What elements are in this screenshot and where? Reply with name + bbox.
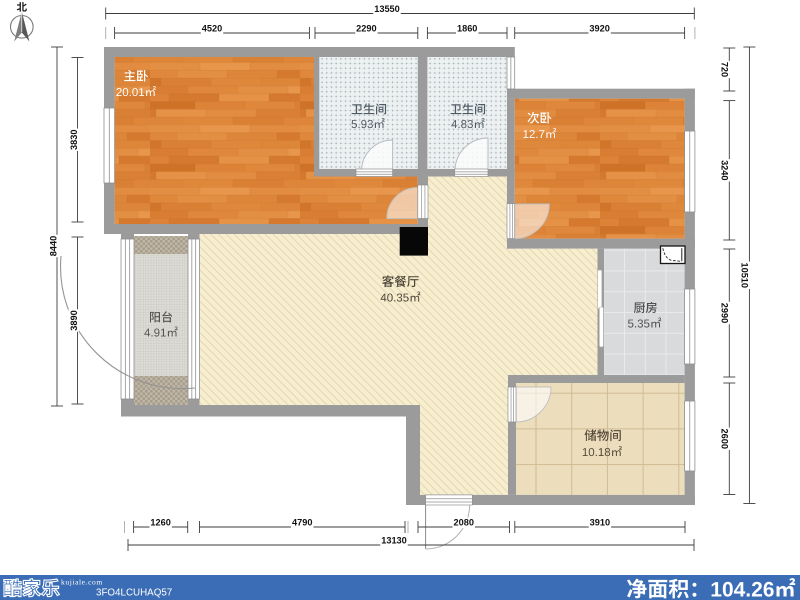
svg-text:2080: 2080 [454,518,474,528]
svg-text:kujiale.com: kujiale.com [61,578,103,587]
svg-text:4520: 4520 [202,24,222,34]
svg-text:10510: 10510 [740,262,750,288]
svg-text:3890: 3890 [69,310,79,330]
svg-text:3240: 3240 [719,160,729,180]
svg-text:3FO4LCUHAQ57: 3FO4LCUHAQ57 [96,588,172,599]
svg-text:8440: 8440 [49,236,59,256]
svg-text:1260: 1260 [150,518,170,528]
svg-text:3830: 3830 [69,130,79,150]
svg-text:2990: 2990 [719,303,729,323]
svg-text:13130: 13130 [381,536,407,546]
svg-text:2290: 2290 [356,24,376,34]
svg-text:4790: 4790 [292,518,312,528]
svg-text:13550: 13550 [374,4,400,14]
svg-text:2600: 2600 [719,429,729,449]
svg-text:3920: 3920 [589,24,609,34]
svg-text:3910: 3910 [590,518,610,528]
svg-text:720: 720 [719,62,729,77]
svg-text:1860: 1860 [457,24,477,34]
